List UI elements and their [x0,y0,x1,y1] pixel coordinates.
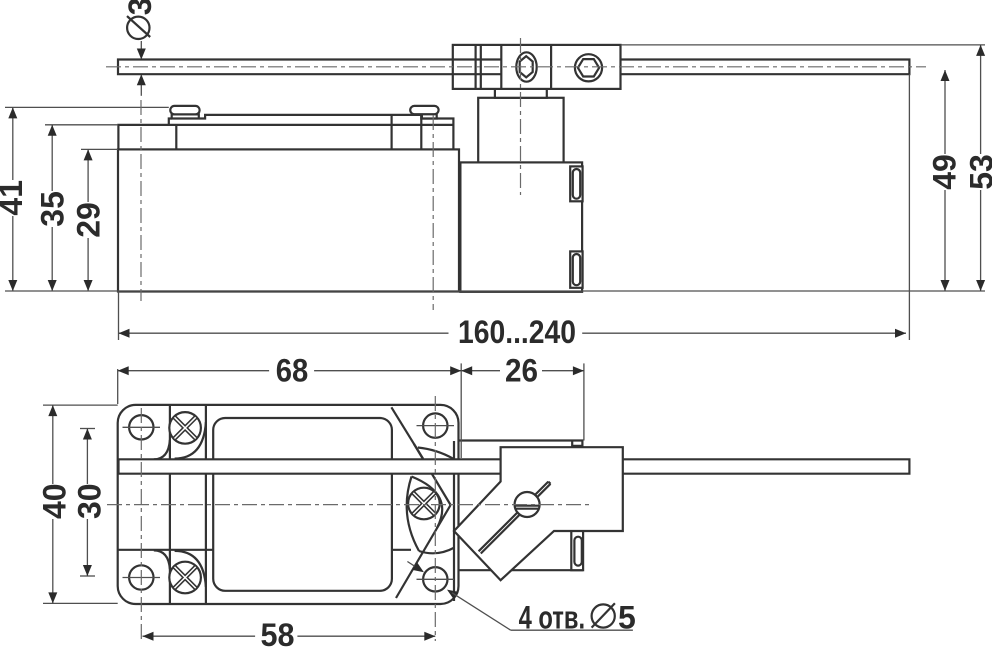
svg-text:30: 30 [72,483,108,519]
svg-text:58: 58 [261,617,295,647]
svg-text:35: 35 [35,191,71,227]
svg-text:40: 40 [37,483,73,519]
svg-text:49: 49 [927,154,963,190]
svg-text:68: 68 [276,353,309,389]
svg-text:41: 41 [0,180,29,216]
svg-text:26: 26 [505,353,538,389]
svg-text:4 отв.: 4 отв. [519,600,586,636]
svg-text:3: 3 [122,0,158,15]
svg-text:29: 29 [71,202,107,238]
svg-text:53: 53 [964,154,992,190]
svg-text:160...240: 160...240 [458,314,576,350]
svg-text:5: 5 [618,600,636,636]
